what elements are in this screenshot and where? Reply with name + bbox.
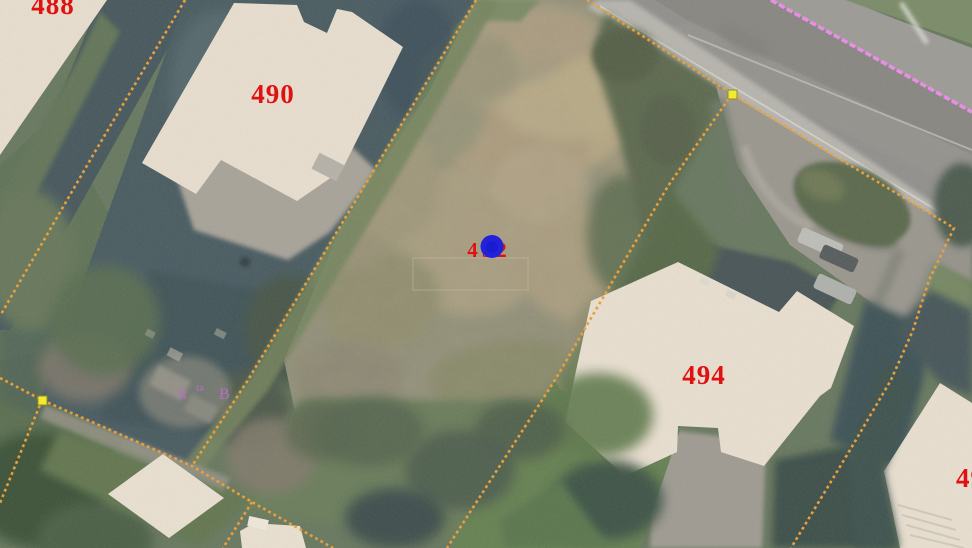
svg-text:494: 494 xyxy=(682,360,726,390)
svg-text:ta: ta xyxy=(196,382,204,394)
svg-text:488: 488 xyxy=(31,0,75,20)
svg-text:490: 490 xyxy=(251,79,295,109)
svg-text:R: R xyxy=(178,388,188,403)
svg-text:49: 49 xyxy=(956,463,972,493)
svg-text:B: B xyxy=(219,386,230,403)
